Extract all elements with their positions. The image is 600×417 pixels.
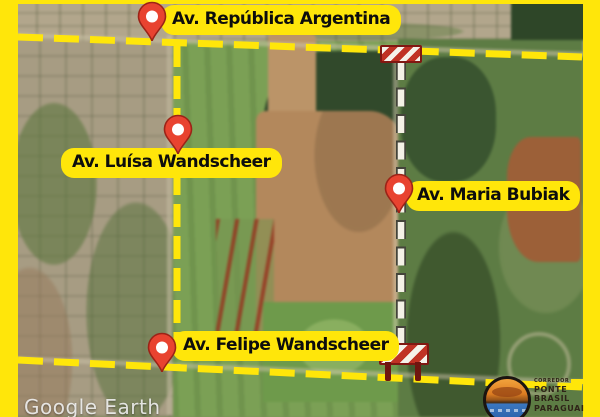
- forest-patch-right: [401, 57, 496, 182]
- logo-line-ponte: PONTE: [534, 386, 589, 394]
- logo-line-paraguai: PARAGUAI: [534, 405, 589, 413]
- street-label-luisa-wandscheer: Av. Luísa Wandscheer: [61, 148, 282, 178]
- logo-line-brasil: BRASIL: [534, 395, 589, 403]
- map-poster: Av. República Argentina Av. Luísa Wandsc…: [0, 0, 600, 417]
- street-label-republica-argentina: Av. República Argentina: [161, 5, 401, 35]
- road-vertical-right: [393, 51, 398, 356]
- google-earth-watermark: Google Earth: [24, 395, 161, 417]
- street-label-felipe-wandscheer: Av. Felipe Wandscheer: [172, 331, 399, 361]
- ponte-brasil-paraguai-logo-icon: [483, 376, 531, 417]
- logo-highlight-bar: [571, 379, 589, 384]
- road-closed-barrier-icon-top: [380, 45, 422, 63]
- ponte-brasil-paraguai-logo-text: CORREDOR PONTE BRASIL PARAGUAI: [534, 379, 589, 413]
- forest-patch-top-right: [511, 4, 583, 40]
- barrier-leg-left: [385, 362, 391, 381]
- logo-eyebrow-text: CORREDOR: [534, 379, 569, 384]
- road-vertical-left: [167, 35, 172, 415]
- tilled-field-large: [256, 111, 403, 333]
- street-label-maria-bubiak: Av. Maria Bubiak: [406, 181, 580, 211]
- barrier-leg-right: [415, 362, 421, 381]
